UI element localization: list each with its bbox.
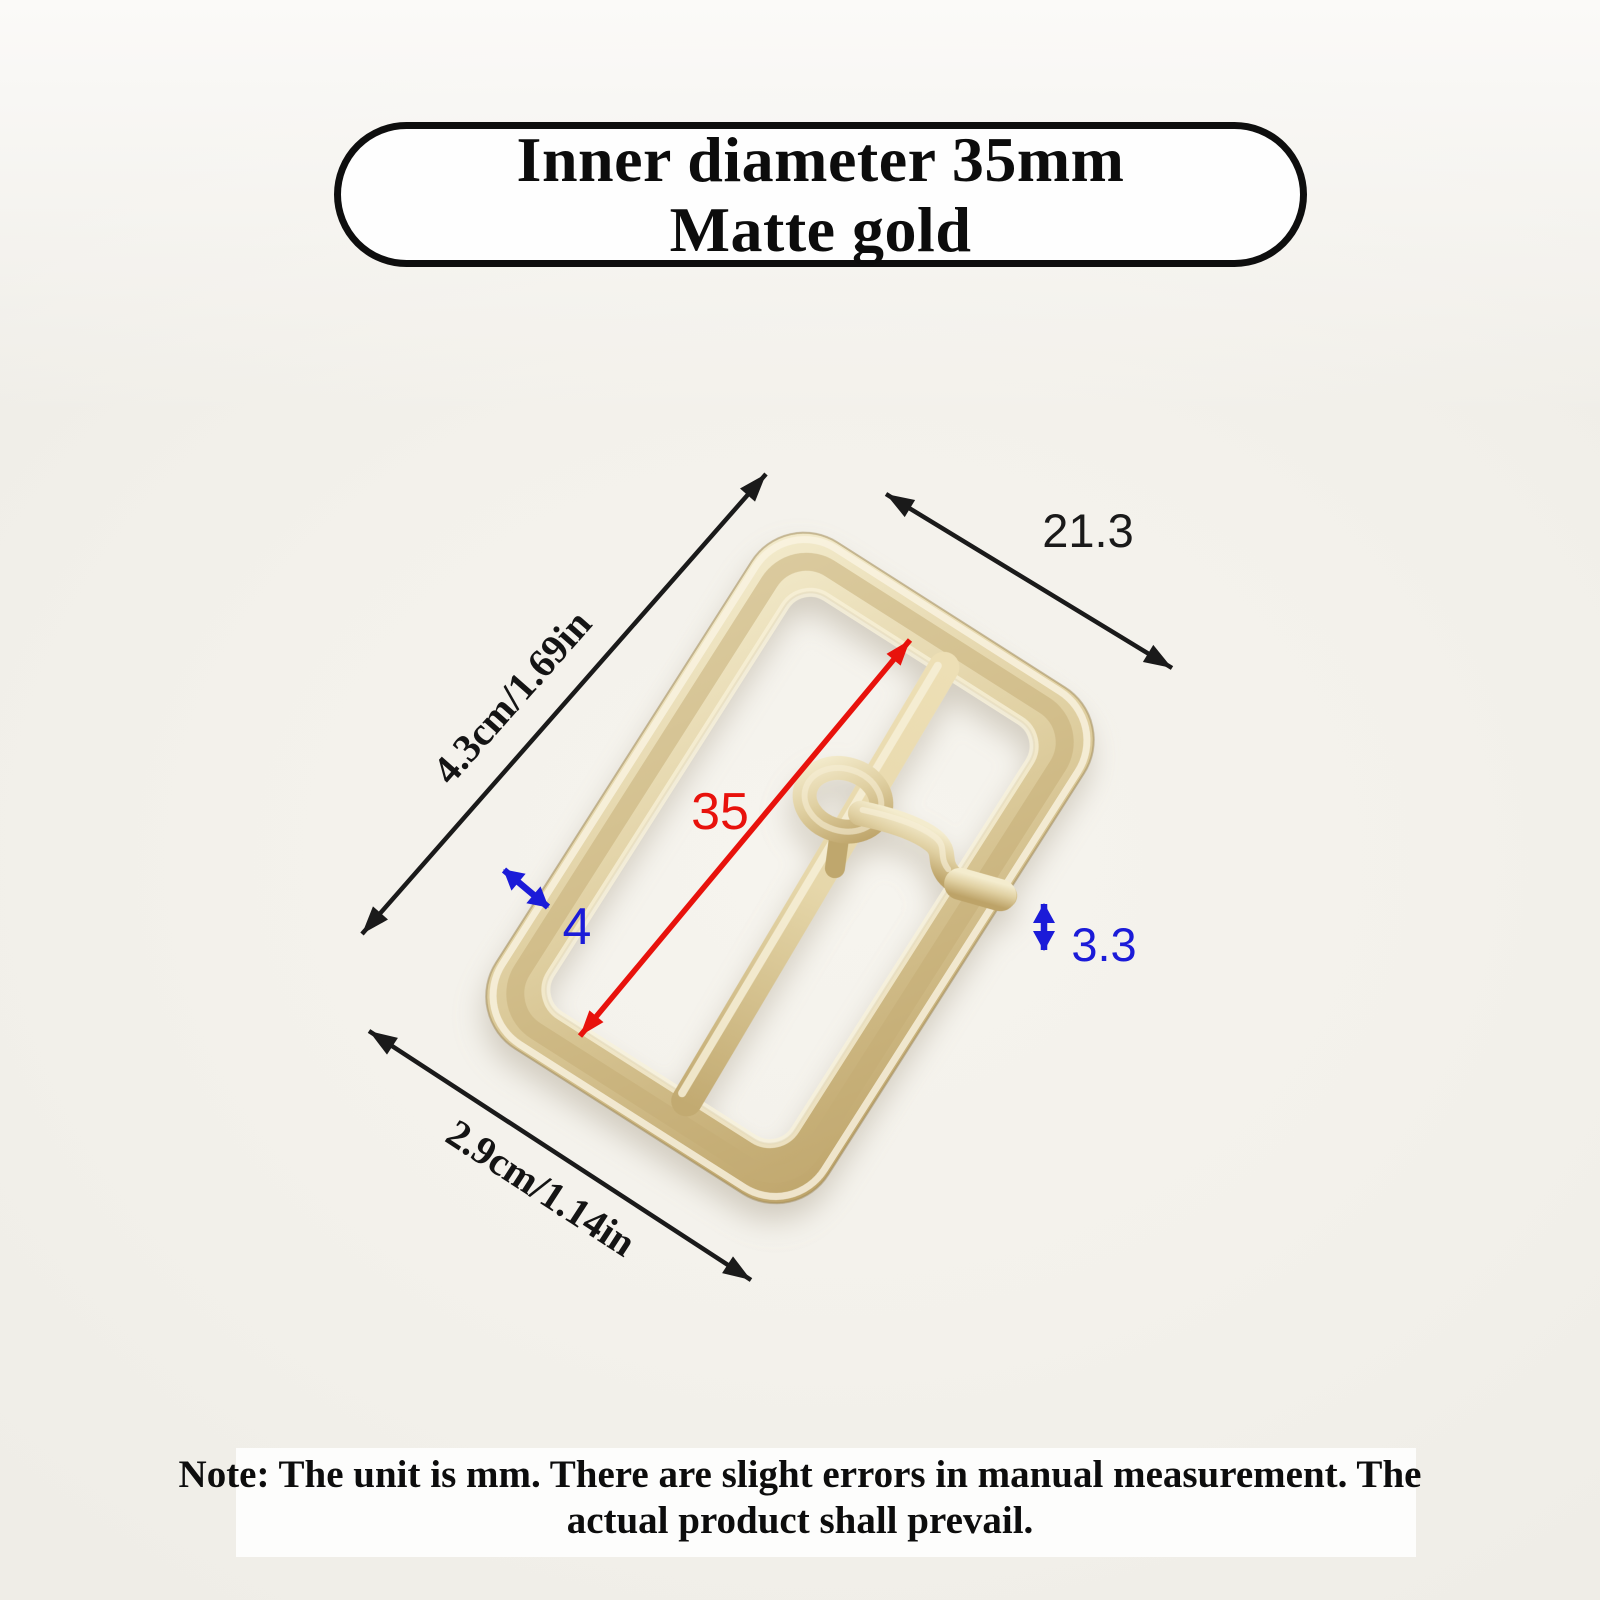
note-line2: actual product shall prevail. (0, 1498, 1600, 1544)
buckle-pin-tab (825, 840, 849, 868)
dim-label-frame-thickness: 4 (563, 898, 592, 956)
note-line1: Note: The unit is mm. There are slight e… (0, 1452, 1600, 1498)
product-dimension-page: Inner diameter 35mm Matte gold (0, 0, 1600, 1600)
dim-label-inner-diameter: 35 (691, 783, 749, 841)
buckle-pin-tip (960, 874, 1000, 906)
dim-label-top-width: 21.3 (1042, 504, 1133, 557)
note-text: Note: The unit is mm. There are slight e… (0, 1452, 1600, 1544)
dim-label-pin-thickness: 3.3 (1071, 918, 1136, 971)
dim-line-frame-thickness (504, 870, 548, 907)
buckle-illustration: 4.3cm/1.69in 21.3 2.9cm/1.14in 35 4 3.3 (0, 0, 1600, 1600)
